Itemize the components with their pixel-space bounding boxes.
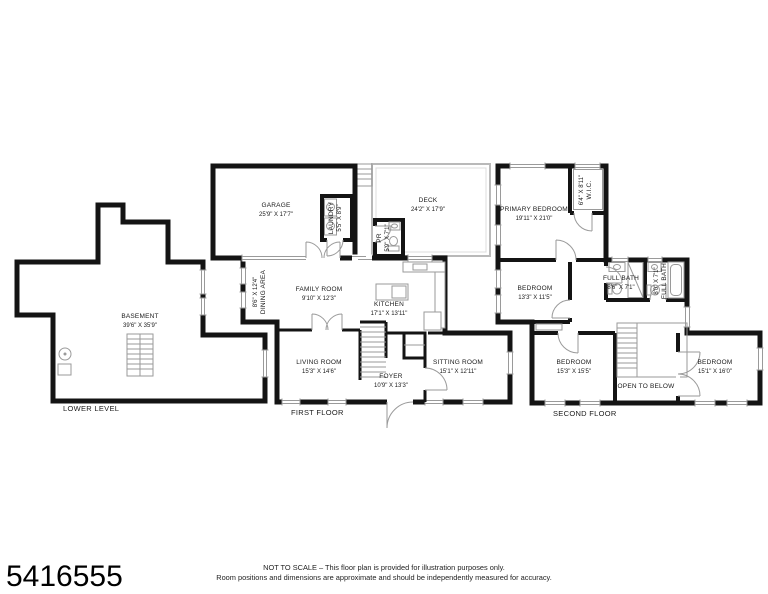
second-floor-title: SECOND FLOOR xyxy=(553,409,617,418)
first-floor-title: FIRST FLOOR xyxy=(291,408,344,417)
wic-dims: 6'4" X 8'11" xyxy=(579,175,585,205)
basement-dims: 39'6" X 35'9" xyxy=(123,323,157,329)
bedroom3-dims: 15'3" X 15'5" xyxy=(557,369,591,375)
bedroom2-dims: 13'3" X 11'5" xyxy=(518,295,551,301)
disclaimer-line2: Room positions and dimensions are approx… xyxy=(0,573,768,583)
dining-area-dims: 8'6" X 12'4" xyxy=(253,277,259,308)
full-bath1-dims: 8'6" X 7'1" xyxy=(607,285,634,291)
full-bath2-dims: 8'0" X 7'1" xyxy=(654,267,660,294)
family-room-dims: 9'10" X 12'3" xyxy=(302,296,336,302)
bedroom4-label: BEDROOM xyxy=(698,359,733,366)
bedroom2-label: BEDROOM xyxy=(518,285,553,292)
family-room-label: FAMILY ROOM xyxy=(296,286,343,293)
bedroom3-label: BEDROOM xyxy=(557,359,592,366)
living-room-dims: 15'3" X 14'6" xyxy=(302,369,336,375)
open-to-below-label: OPEN TO BELOW xyxy=(618,383,676,390)
powder-room-dims: 5'9" X 7'1" xyxy=(385,224,391,251)
full-bath2-label: FULL BATH xyxy=(661,263,668,299)
kitchen-label: KITCHEN xyxy=(374,301,404,308)
sitting-room-dims: 15'1" X 12'11" xyxy=(440,369,477,375)
laundry-label: LAUNDRY xyxy=(328,201,335,234)
second-floor-plan: PRIMARY BEDROOM 19'11" X 21'0" W.I.C. 6'… xyxy=(495,163,764,419)
living-room-label: LIVING ROOM xyxy=(296,359,342,366)
full-bath1-label: FULL BATH xyxy=(603,275,639,282)
garage-dims: 25'9" X 17'7" xyxy=(259,212,293,218)
floor-plan-page: BASEMENT 39'6" X 35'9" LOWER LEVEL xyxy=(0,0,768,594)
lower-level-title: LOWER LEVEL xyxy=(63,404,119,413)
floor-plan-drawing: BASEMENT 39'6" X 35'9" LOWER LEVEL xyxy=(0,0,768,594)
basement-label: BASEMENT xyxy=(121,313,158,320)
primary-bedroom-label: PRIMARY BEDROOM xyxy=(500,206,568,213)
wic-label: W.I.C. xyxy=(586,181,593,200)
utility-detector-dot-icon xyxy=(64,353,67,356)
disclaimer-line1: NOT TO SCALE – This floor plan is provid… xyxy=(0,563,768,573)
deck-label: DECK xyxy=(419,197,438,204)
primary-bedroom-dims: 19'11" X 21'0" xyxy=(516,216,553,222)
foyer-dims: 10'9" X 13'3" xyxy=(374,383,408,389)
deck-dims: 24'2" X 17'9" xyxy=(411,207,445,213)
laundry-dims: 5'5" X 8'9" xyxy=(337,204,343,231)
foyer-label: FOYER xyxy=(379,373,402,380)
garage-label: GARAGE xyxy=(261,202,290,209)
dining-area-label: DINING AREA xyxy=(260,269,267,314)
powder-room-label: PR xyxy=(376,233,383,243)
sitting-room-label: SITTING ROOM xyxy=(433,359,483,366)
bedroom4-dims: 15'1" X 16'0" xyxy=(698,369,732,375)
kitchen-dims: 17'1" X 13'11" xyxy=(371,311,408,317)
disclaimer: NOT TO SCALE – This floor plan is provid… xyxy=(0,563,768,583)
